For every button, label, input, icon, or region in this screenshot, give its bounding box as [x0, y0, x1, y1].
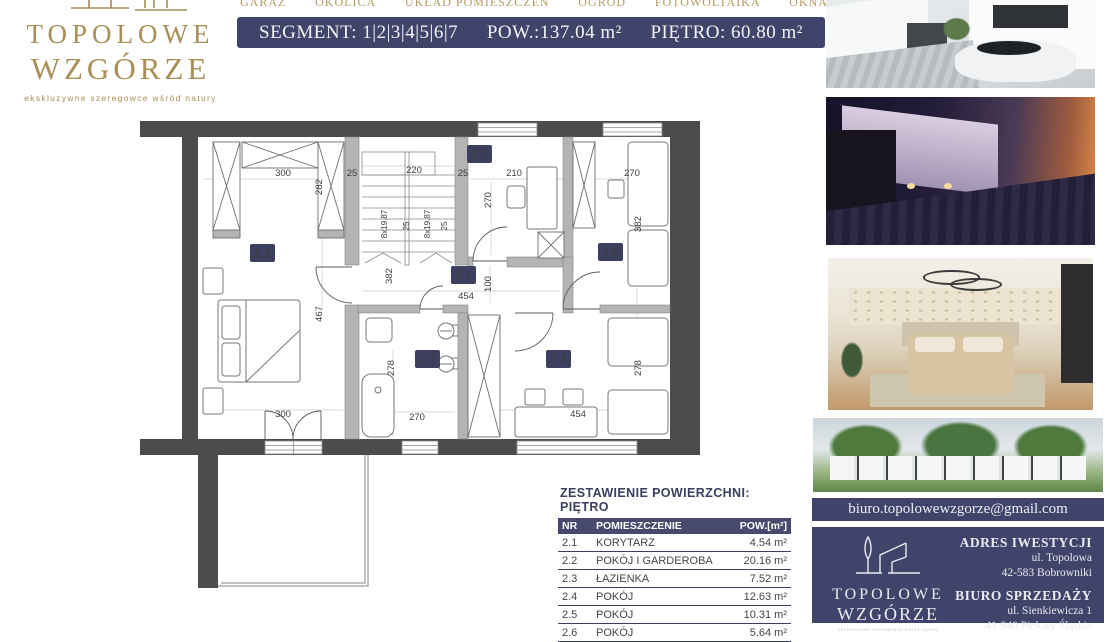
dim-382-25: 382 — [633, 216, 644, 232]
nav-item-okolica[interactable]: OKOLICA — [315, 0, 376, 9]
area-table: ZESTAWIENIE POWIERZCHNI: PIĘTRO NR POMIE… — [558, 486, 791, 642]
room-badge-2-2: 2.2 — [254, 247, 271, 261]
window-2-3 — [402, 441, 438, 454]
total-area-label: POW.:137.04 m² — [487, 22, 622, 44]
window-2-4 — [517, 441, 637, 454]
cell-area: 5.64 m² — [721, 627, 787, 639]
contact-brand-line2: WZGÓRZE — [828, 604, 948, 625]
col-room: POMIESZCZENIE — [596, 520, 721, 532]
dim-100: 100 — [483, 276, 494, 292]
cell-area: 12.63 m² — [721, 591, 787, 603]
cell-area: 4.54 m² — [721, 537, 787, 549]
brand-tagline: ekskluzywne szeregowce wśród natury — [8, 93, 233, 103]
dim-stair-2: 25 — [402, 221, 411, 230]
col-nr: NR — [562, 520, 596, 532]
washbasin — [366, 318, 392, 342]
nav-item-okna[interactable]: OKNA — [789, 0, 828, 9]
area-table-title: ZESTAWIENIE POWIERZCHNI: PIĘTRO — [560, 486, 791, 514]
room-badge-2-1: 2.1 — [455, 269, 472, 283]
email-link[interactable]: biuro.topolowewzgorze@gmail.com — [812, 498, 1104, 521]
bed-2-5-b — [628, 230, 668, 286]
desk-2-6 — [527, 167, 557, 229]
bed-2-5-a — [628, 142, 668, 226]
dim-25-a: 25 — [347, 168, 358, 179]
dim-stair-1: 8x19.87 — [380, 209, 389, 238]
dim-382-stairs: 382 — [384, 268, 395, 284]
office-line: ul. Sienkiewicza 1 — [948, 604, 1092, 619]
address-title: ADRES IWESTYCJI — [948, 535, 1092, 551]
terrace — [218, 455, 368, 586]
bed-2-4-b — [608, 390, 668, 434]
contact-info: ADRES IWESTYCJI ul. Topolowa 42-583 Bobr… — [948, 535, 1092, 623]
brand-name-line2: WZGÓRZE — [8, 51, 233, 87]
table-row: 2.4 POKÓJ 12.63 m² — [558, 588, 791, 606]
dim-278-24: 278 — [633, 360, 644, 376]
top-nav: GARAŻ OKOLICA UKŁAD POMIESZCZEŃ OGRÓD FO… — [240, 0, 828, 9]
room-badge-2-3: 2.3 — [419, 353, 436, 367]
nav-item-ogrod[interactable]: OGRÓD — [578, 0, 626, 9]
table-row: 2.3 ŁAZIENKA 7.52 m² — [558, 570, 791, 588]
dim-454-corridor: 454 — [458, 291, 474, 302]
room-badge-2-4: 2.4 — [550, 353, 567, 367]
office-title: BIURO SPRZEDAŻY — [948, 588, 1092, 604]
brand-logo: TOPOLOWE WZGÓRZE ekskluzywne szeregowce … — [8, 0, 233, 103]
poplar-logo-icon — [51, 0, 191, 14]
contact-logo: TOPOLOWE WZGÓRZE ekskluzywne szeregowce … — [828, 535, 948, 623]
dim-278-bath: 278 — [386, 360, 397, 376]
cell-nr: 2.2 — [562, 555, 596, 567]
table-row: 2.6 POKÓJ 5.64 m² — [558, 624, 791, 642]
contact-brand-line1: TOPOLOWE — [828, 586, 948, 604]
cell-room: ŁAZIENKA — [596, 573, 721, 585]
cell-room: POKÓJ — [596, 609, 721, 621]
cell-nr: 2.5 — [562, 609, 596, 621]
segment-bar: SEGMENT: 1|2|3|4|5|6|7 POW.:137.04 m² PI… — [237, 17, 825, 48]
table-row: 2.5 POKÓJ 10.31 m² — [558, 606, 791, 624]
window-2-5 — [603, 123, 662, 136]
address-line: 42-583 Bobrowniki — [948, 566, 1092, 581]
brand-name-line1: TOPOLOWE — [8, 19, 233, 50]
bathtub — [362, 374, 394, 437]
cell-nr: 2.1 — [562, 537, 596, 549]
dim-467: 467 — [314, 306, 325, 322]
dim-stair-4: 25 — [440, 221, 449, 230]
photo-bedroom-interior — [828, 258, 1093, 410]
bed-2-4-a — [608, 318, 668, 366]
dim-220: 220 — [406, 165, 422, 176]
dim-300-bottom: 300 — [275, 409, 291, 420]
table-row: 2.2 POKÓJ I GARDEROBA 20.16 m² — [558, 552, 791, 570]
dim-270-26: 270 — [483, 192, 494, 208]
contact-block: TOPOLOWE WZGÓRZE ekskluzywne szeregowce … — [812, 527, 1104, 623]
cell-area: 10.31 m² — [721, 609, 787, 621]
floor-area-label: PIĘTRO: 60.80 m² — [650, 22, 803, 44]
nav-item-fotowoltaika[interactable]: FOTOWOLTAIKA — [655, 0, 761, 9]
photo-exterior-day — [826, 0, 1095, 88]
cell-room: POKÓJ — [596, 591, 721, 603]
cell-area: 20.16 m² — [721, 555, 787, 567]
cell-room: POKÓJ — [596, 627, 721, 639]
cell-nr: 2.3 — [562, 573, 596, 585]
table-row: 2.1 KORYTARZ 4.54 m² — [558, 534, 791, 552]
col-area: POW.[m²] — [721, 520, 787, 532]
cell-room: KORYTARZ — [596, 537, 721, 549]
room-badge-2-6: 2.6 — [471, 148, 488, 162]
cell-nr: 2.6 — [562, 627, 596, 639]
dim-210: 210 — [506, 168, 522, 179]
dim-stair-3: 8x19.87 — [423, 209, 432, 238]
room-badge-2-5: 2.5 — [602, 246, 619, 260]
nav-item-uklad-pomieszczen[interactable]: UKŁAD POMIESZCZEŃ — [405, 0, 550, 9]
dim-282: 282 — [314, 179, 325, 195]
dim-270-bath: 270 — [409, 412, 425, 423]
photo-townhouses-dusk — [826, 97, 1095, 245]
window-2-6 — [478, 123, 537, 136]
dim-300-top: 300 — [275, 168, 291, 179]
address-line: ul. Topolowa — [948, 551, 1092, 566]
poplar-house-icon — [852, 535, 924, 579]
dim-454-24: 454 — [570, 409, 586, 420]
dim-270-top: 270 — [624, 168, 640, 179]
area-table-header: NR POMIESZCZENIE POW.[m²] — [558, 518, 791, 534]
cell-nr: 2.4 — [562, 591, 596, 603]
photo-row-houses-elevation — [813, 418, 1103, 492]
cell-room: POKÓJ I GARDEROBA — [596, 555, 721, 567]
contact-brand-tagline: ekskluzywne szeregowce wśród natury — [828, 627, 948, 632]
dim-25-b: 25 — [458, 168, 469, 179]
cell-area: 7.52 m² — [721, 573, 787, 585]
office-line: 41-940 Piekary Śląskie — [948, 619, 1092, 634]
nav-item-garaz[interactable]: GARAŻ — [240, 0, 286, 9]
segment-selector[interactable]: SEGMENT: 1|2|3|4|5|6|7 — [259, 22, 458, 44]
